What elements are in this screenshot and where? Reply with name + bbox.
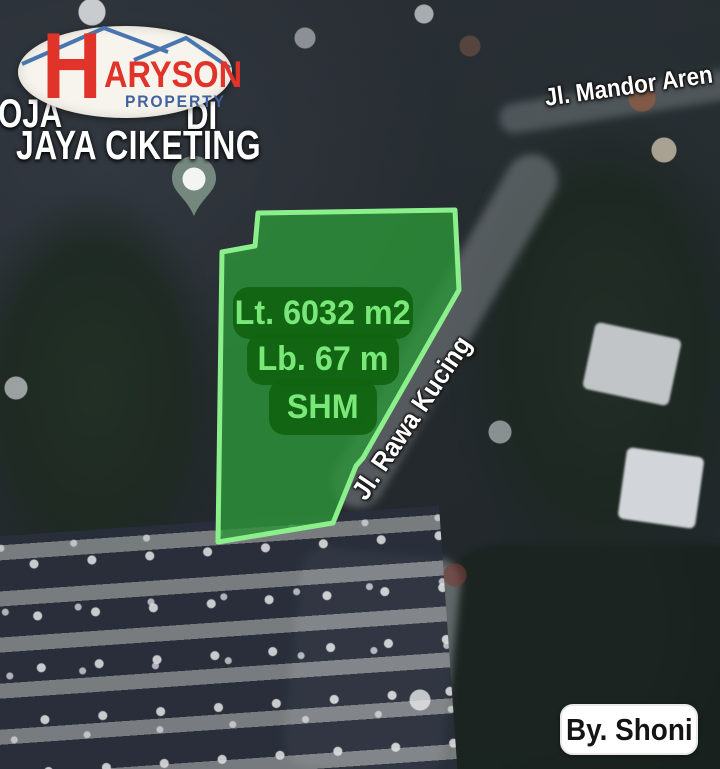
- plot-certificate-chip: SHM: [269, 379, 377, 435]
- headline-line2: JAYA CIKETING: [16, 122, 261, 169]
- road-label-mandor-aren: Jl. Mandor Aren: [543, 61, 715, 113]
- credit-badge: By. Shoni: [560, 704, 698, 755]
- housing-estate-rows: [0, 506, 460, 769]
- plot-area-label: Lt. 6032 m2: [235, 294, 411, 333]
- light-rooftop-building: [582, 322, 682, 407]
- haryson-property-logo: H ARYSON PROPERTY: [18, 26, 232, 118]
- credit-label: By. Shoni: [566, 712, 693, 748]
- white-building: [617, 447, 704, 529]
- plot-area-chip: Lt. 6032 m2: [233, 287, 413, 339]
- forest-patch-left: [0, 190, 220, 590]
- logo-tagline: PROPERTY: [125, 92, 226, 112]
- plot-certificate-label: SHM: [287, 388, 359, 427]
- forest-patch-right: [455, 100, 720, 600]
- open-field-area: [281, 544, 463, 769]
- map-canvas: Lt. 6032 m2 Lb. 67 m SHM Jl. Mandor Aren…: [0, 0, 720, 769]
- logo-name: ARYSON: [104, 54, 242, 96]
- plot-frontage-label: Lb. 67 m: [257, 340, 388, 379]
- plot-frontage-chip: Lb. 67 m: [247, 333, 399, 385]
- logo-letter-h: H: [42, 19, 102, 113]
